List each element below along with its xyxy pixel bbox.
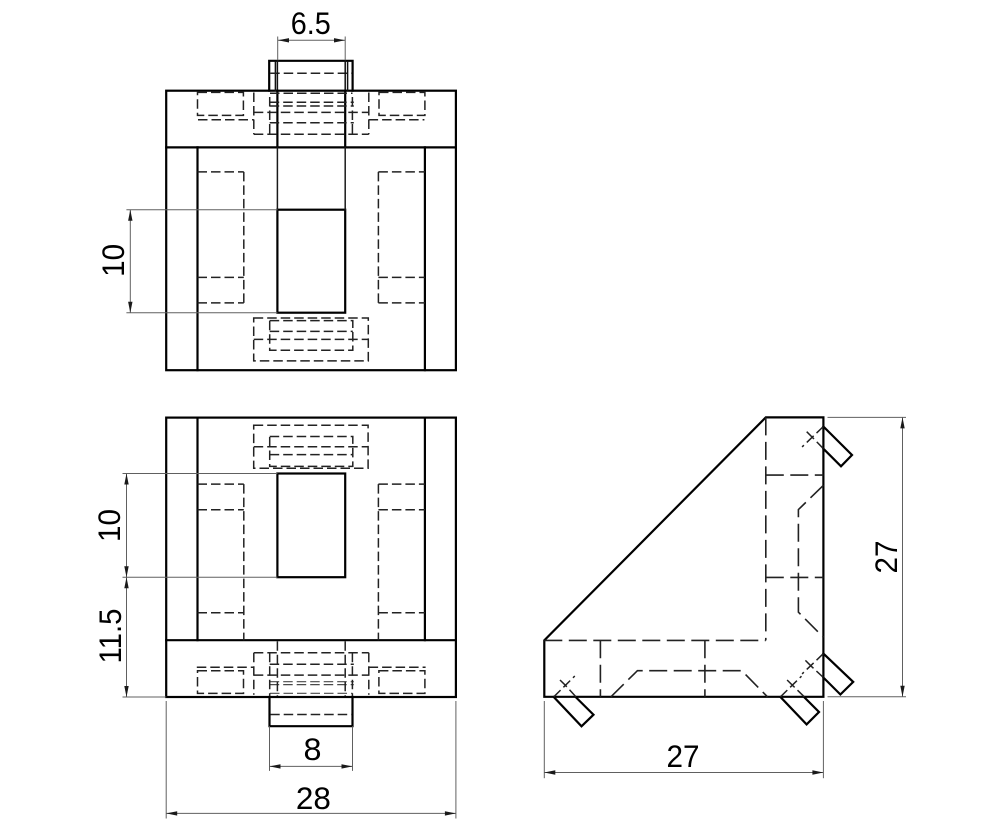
svg-text:10: 10 [95,244,131,277]
svg-text:27: 27 [667,738,700,774]
svg-text:10: 10 [91,509,127,542]
svg-text:11.5: 11.5 [92,609,128,664]
svg-text:28: 28 [296,780,331,816]
svg-text:6.5: 6.5 [291,5,331,41]
svg-text:27: 27 [868,541,904,574]
svg-text:8: 8 [304,731,322,767]
